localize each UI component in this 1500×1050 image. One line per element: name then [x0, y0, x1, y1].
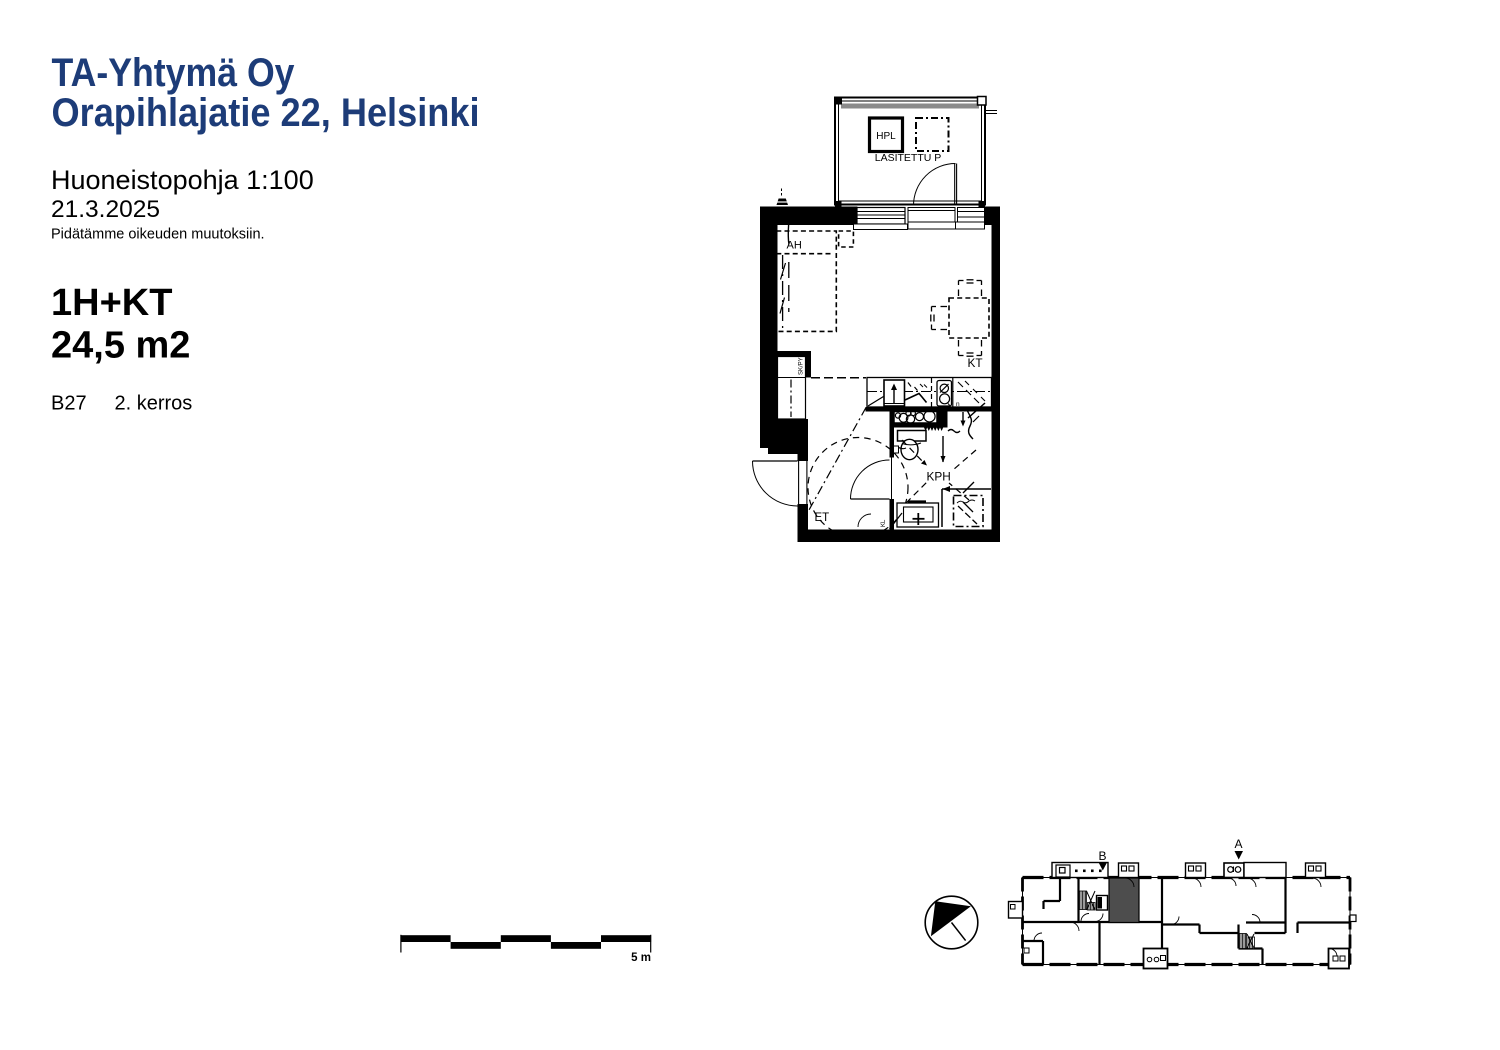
svg-text:A: A — [1235, 837, 1243, 851]
svg-text:5 m: 5 m — [631, 952, 651, 964]
svg-text:KL: KL — [881, 519, 887, 527]
svg-text:B27: B27 — [51, 393, 87, 415]
svg-text:n: n — [956, 401, 960, 408]
svg-text:Huoneistopohja 1:100: Huoneistopohja 1:100 — [51, 165, 314, 195]
svg-text:KT: KT — [968, 356, 983, 370]
svg-text:HPL: HPL — [876, 131, 896, 142]
svg-text:LASITETTU P: LASITETTU P — [875, 152, 942, 164]
svg-text:Pidätämme oikeuden muutoksiin.: Pidätämme oikeuden muutoksiin. — [51, 227, 265, 243]
svg-text:ET: ET — [815, 512, 830, 524]
svg-text:KPH: KPH — [927, 470, 951, 484]
svg-text:21.3.2025: 21.3.2025 — [51, 196, 160, 223]
svg-text:Orapihlajatie 22, Helsinki: Orapihlajatie 22, Helsinki — [52, 91, 480, 135]
svg-text:SK/PY: SK/PY — [799, 357, 805, 375]
svg-text:B: B — [1099, 849, 1107, 863]
svg-text:2. kerros: 2. kerros — [115, 393, 193, 415]
svg-text:1H+KT: 1H+KT — [51, 282, 172, 324]
svg-text:TA-Yhtymä Oy: TA-Yhtymä Oy — [52, 51, 296, 95]
svg-text:24,5 m2: 24,5 m2 — [51, 325, 190, 367]
